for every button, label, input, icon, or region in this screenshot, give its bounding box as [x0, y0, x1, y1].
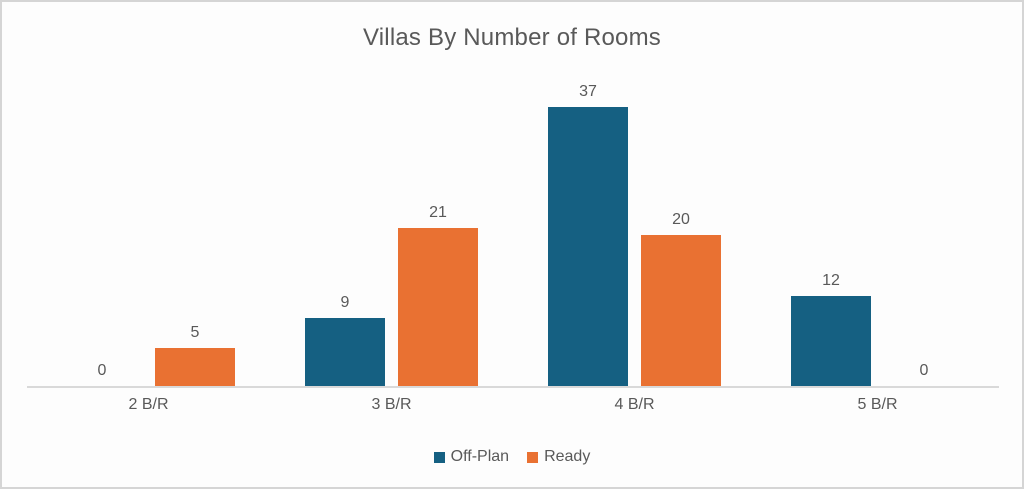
bar-off-plan-5-b-r: [791, 296, 871, 386]
x-axis-label: 2 B/R: [89, 396, 209, 414]
bar-ready-4-b-r: [641, 235, 721, 386]
legend-item-ready: Ready: [527, 448, 590, 466]
data-label: 20: [641, 211, 721, 229]
x-axis-label: 3 B/R: [332, 396, 452, 414]
data-label: 12: [791, 272, 871, 290]
legend-item-off-plan: Off-Plan: [434, 448, 509, 466]
bar-off-plan-4-b-r: [548, 107, 628, 386]
x-axis-label: 4 B/R: [575, 396, 695, 414]
legend-swatch-icon: [527, 452, 538, 463]
data-label: 0: [884, 362, 964, 380]
bar-chart: Villas By Number of Rooms 2 B/R053 B/R92…: [0, 0, 1024, 489]
data-label: 9: [305, 294, 385, 312]
data-label: 21: [398, 204, 478, 222]
chart-title: Villas By Number of Rooms: [2, 24, 1022, 52]
bar-ready-3-b-r: [398, 228, 478, 386]
chart-legend: Off-PlanReady: [2, 448, 1022, 466]
legend-label: Ready: [544, 448, 590, 466]
data-label: 37: [548, 83, 628, 101]
bar-off-plan-3-b-r: [305, 318, 385, 386]
data-label: 0: [62, 362, 142, 380]
data-label: 5: [155, 324, 235, 342]
bar-ready-2-b-r: [155, 348, 235, 386]
legend-swatch-icon: [434, 452, 445, 463]
plot-area: 2 B/R053 B/R9214 B/R37205 B/R120: [27, 77, 999, 388]
x-axis-label: 5 B/R: [818, 396, 938, 414]
legend-label: Off-Plan: [451, 448, 509, 466]
